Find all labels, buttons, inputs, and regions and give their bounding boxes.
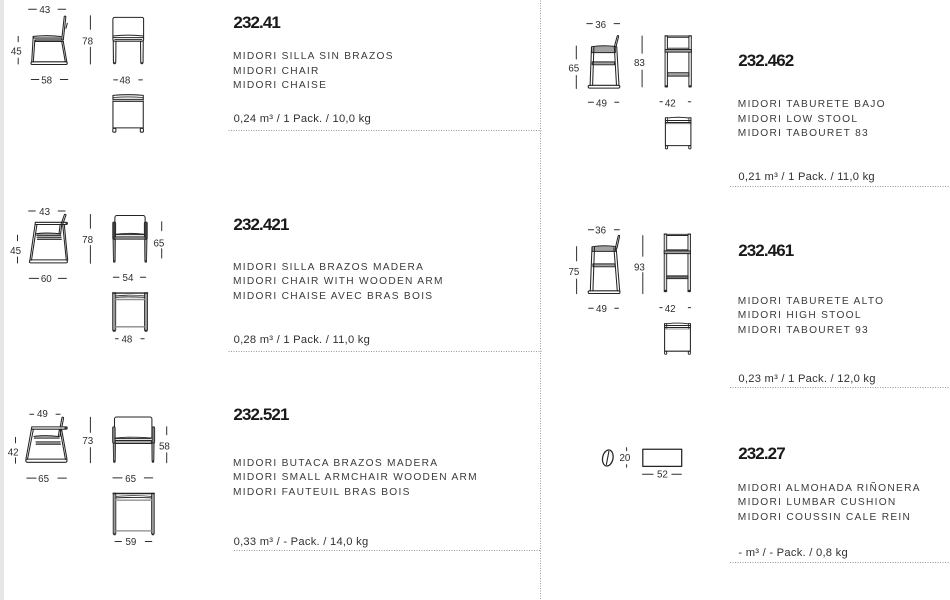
svg-text:65: 65 xyxy=(568,63,579,74)
svg-text:75: 75 xyxy=(568,267,579,278)
svg-text:65: 65 xyxy=(38,474,49,485)
svg-text:78: 78 xyxy=(82,37,93,48)
svg-text:48: 48 xyxy=(119,76,130,87)
svg-text:73: 73 xyxy=(82,436,93,447)
svg-text:65: 65 xyxy=(153,239,164,250)
svg-text:60: 60 xyxy=(41,274,52,285)
svg-text:43: 43 xyxy=(39,207,50,218)
svg-text:42: 42 xyxy=(665,304,676,315)
svg-text:20: 20 xyxy=(619,453,630,464)
svg-text:58: 58 xyxy=(159,442,170,453)
svg-text:43: 43 xyxy=(39,5,50,16)
svg-text:42: 42 xyxy=(8,448,19,459)
svg-text:36: 36 xyxy=(595,226,606,237)
svg-text:52: 52 xyxy=(657,470,668,481)
svg-text:83: 83 xyxy=(634,58,645,69)
svg-text:42: 42 xyxy=(665,98,676,109)
svg-text:93: 93 xyxy=(634,262,645,273)
svg-text:48: 48 xyxy=(121,334,132,345)
svg-text:36: 36 xyxy=(595,20,606,31)
svg-text:49: 49 xyxy=(596,98,607,109)
svg-text:49: 49 xyxy=(37,409,48,420)
svg-text:59: 59 xyxy=(125,537,136,548)
svg-text:58: 58 xyxy=(41,75,52,86)
svg-text:45: 45 xyxy=(10,246,21,257)
svg-text:49: 49 xyxy=(596,304,607,315)
svg-text:78: 78 xyxy=(82,235,93,246)
svg-text:54: 54 xyxy=(123,273,134,284)
svg-text:65: 65 xyxy=(125,474,136,485)
svg-text:45: 45 xyxy=(11,47,22,58)
